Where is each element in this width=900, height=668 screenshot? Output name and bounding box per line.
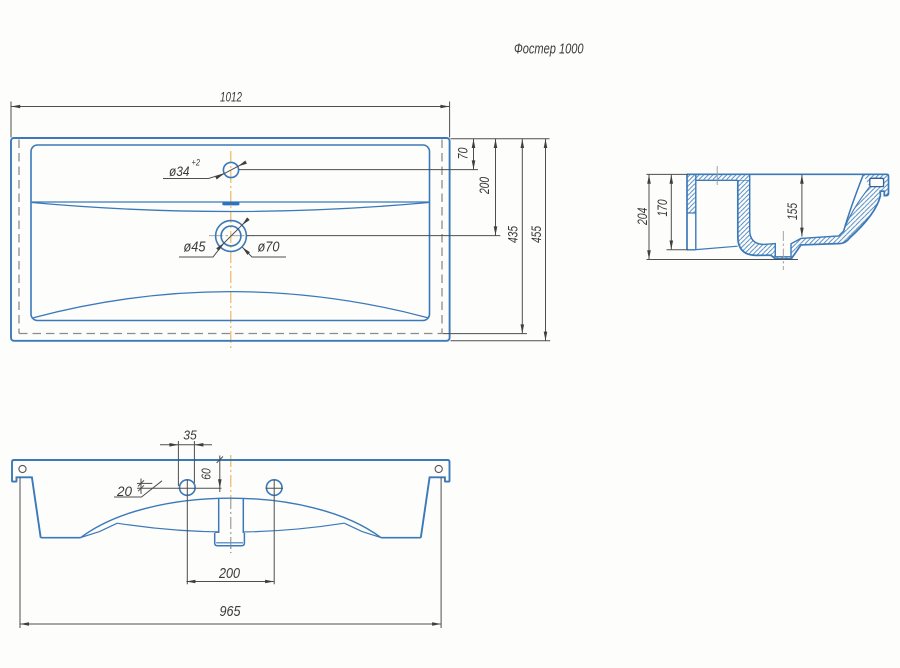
svg-text:1012: 1012: [220, 90, 242, 105]
svg-text:Фостер 1000: Фостер 1000: [514, 42, 584, 58]
svg-text:ø34: ø34: [169, 163, 190, 179]
svg-text:ø70: ø70: [258, 240, 280, 256]
svg-text:170: 170: [655, 199, 670, 216]
svg-text:ø45: ø45: [184, 240, 207, 256]
svg-text:+2: +2: [192, 158, 201, 169]
svg-text:60: 60: [200, 468, 214, 480]
svg-text:70: 70: [456, 147, 471, 159]
svg-text:965: 965: [220, 603, 242, 620]
svg-text:204: 204: [635, 208, 650, 226]
svg-text:435: 435: [506, 226, 521, 243]
svg-text:200: 200: [218, 565, 240, 582]
svg-text:35: 35: [183, 429, 197, 443]
svg-text:455: 455: [529, 226, 544, 243]
svg-text:155: 155: [785, 203, 800, 220]
svg-text:200: 200: [477, 177, 492, 195]
svg-text:20: 20: [116, 483, 132, 499]
